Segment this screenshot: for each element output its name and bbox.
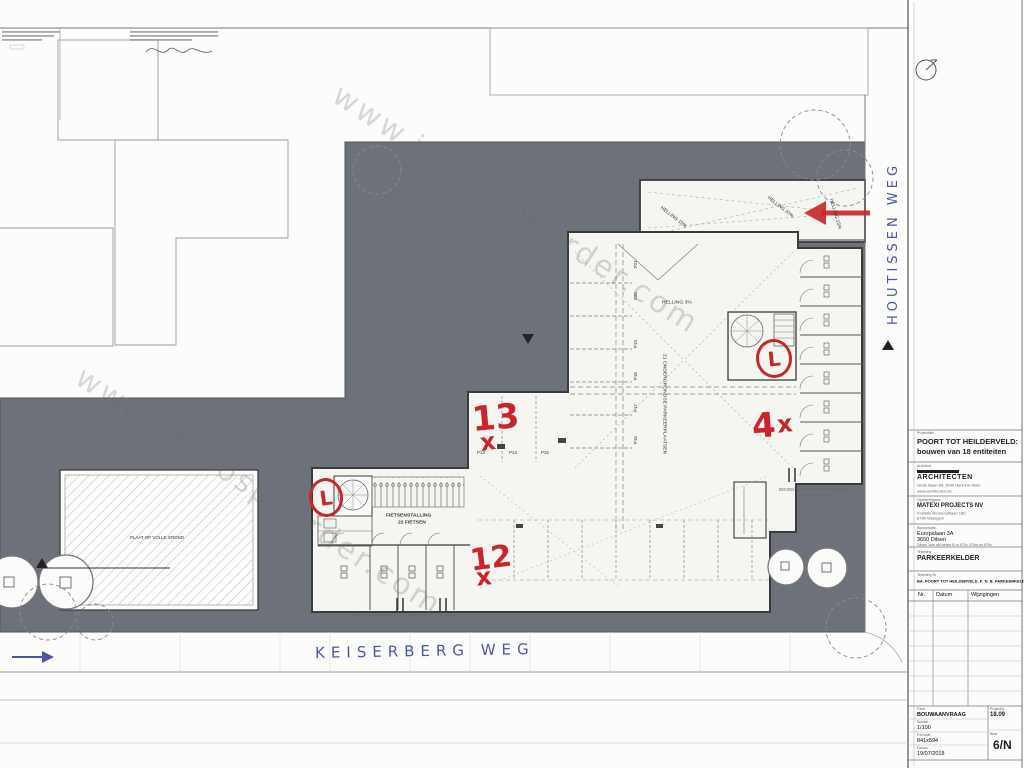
red-x-mark: x	[475, 562, 493, 591]
street-arrow-icon	[12, 651, 54, 663]
north-arrow-icon	[916, 60, 937, 80]
tb-format-label: Formaat	[917, 733, 930, 737]
existing-buildings	[0, 40, 288, 346]
tb-architect-label: Architect	[917, 464, 931, 468]
tb-client-name: MATEXI PROJECTS NV	[917, 503, 983, 509]
street-name-keiserbergweg: KEISERBERG WEG	[315, 640, 535, 662]
parking-space-label: P18	[633, 372, 638, 380]
parking-space-label: P16	[633, 436, 638, 444]
scanned-site-plan: www.immospeurder.com www.immospeurder.co…	[0, 0, 1024, 768]
signature	[146, 48, 212, 52]
tb-phase-label: Fase	[917, 707, 925, 711]
street-name-houtissenweg: HOUTISSEN WEG	[886, 162, 901, 325]
tb-architect-address: Grote Baan 84, 3540 Herk-De-Stad	[917, 483, 980, 488]
parking-count-label: 21 ONDERGRONDSE PARKEERPLAATSEN	[662, 354, 668, 454]
tb-rev-header-wijzigingen: Wijzigingen	[971, 592, 999, 598]
parking-space-label: P19	[633, 340, 638, 348]
tb-drawing-label: Tekening	[917, 550, 931, 554]
tb-project-label: Projecttitel	[917, 431, 934, 435]
tb-sheet-number: 6/N	[993, 738, 1012, 752]
hall-slope-label: HELLING 3%	[662, 299, 692, 305]
tb-date: 19/07/2018	[917, 751, 945, 757]
parking-space-label: P20	[633, 292, 638, 300]
tb-sheet-label: Blad	[990, 732, 997, 736]
bike-count-label: 22 FIETSEN	[398, 519, 426, 525]
tb-architect-web: www.architecten.be	[917, 489, 952, 494]
tb-project-title-1: POORT TOT HEILDERVELD:	[917, 437, 1018, 446]
tb-client-address-2: 8790 Waregem	[917, 516, 944, 521]
stamp	[2, 31, 218, 52]
tb-projno: 18.09	[990, 712, 1005, 718]
tb-phase: BOUWAANVRAAG	[917, 712, 966, 718]
tb-projno-label: Projectnr	[990, 707, 1004, 711]
tb-scale-label: Schaal	[917, 720, 928, 724]
tb-project-title-2: bouwen van 18 entiteiten	[917, 447, 1006, 456]
tb-rev-header-datum: Datum	[936, 592, 952, 598]
slab-label: PLAAT OP VOLLE GROND	[130, 535, 184, 540]
red-count-4: 4	[751, 405, 777, 447]
tb-rev-header-nr: Nr.	[918, 592, 925, 598]
parking-space-label: P14	[509, 450, 517, 455]
tb-date-label: Datum	[917, 746, 928, 750]
tb-site-3: Dilsen 1ste afd sectie B nr 579v, 579w e…	[917, 543, 992, 547]
tb-drawing-name: PARKEERKELDER	[917, 555, 980, 562]
l-glyph: L	[766, 346, 781, 371]
tb-client-label: Opdrachtgever	[917, 498, 941, 502]
tb-site-label: Bouwplaats	[917, 526, 936, 530]
l-glyph: L	[318, 485, 334, 511]
parking-space-label: P17	[633, 404, 638, 412]
small-room	[734, 482, 766, 538]
parking-space-label: P15	[541, 450, 549, 455]
tb-architect-name: ARCHITECTEN	[917, 474, 973, 481]
red-x-mark: x	[776, 409, 794, 438]
vent-label-right: VIA KELDERWAND	[796, 493, 835, 498]
architect-logo-bar	[917, 470, 959, 473]
tb-format: 841x594	[917, 738, 938, 744]
tb-client-address-1: Franklin Rooseveltlaan 180	[917, 511, 965, 516]
vent-label-bottom: BOVEN- EN ONDERVERLUCHTING VIA KELDERWAN…	[347, 613, 460, 618]
vent-label-right: BOVEN- EN ONDERVERLUCHTING	[779, 487, 852, 492]
tb-file-label: Tekening Nr	[917, 573, 936, 577]
bike-storage-label: FIETSENSTALLING	[386, 512, 431, 518]
tb-scale: 1/100	[917, 725, 931, 731]
parking-space-label: P21	[633, 260, 638, 268]
tb-file-name: BA_POORT TOT HEILDERVELD_P_N_B_PARKEERKE…	[917, 579, 1024, 584]
